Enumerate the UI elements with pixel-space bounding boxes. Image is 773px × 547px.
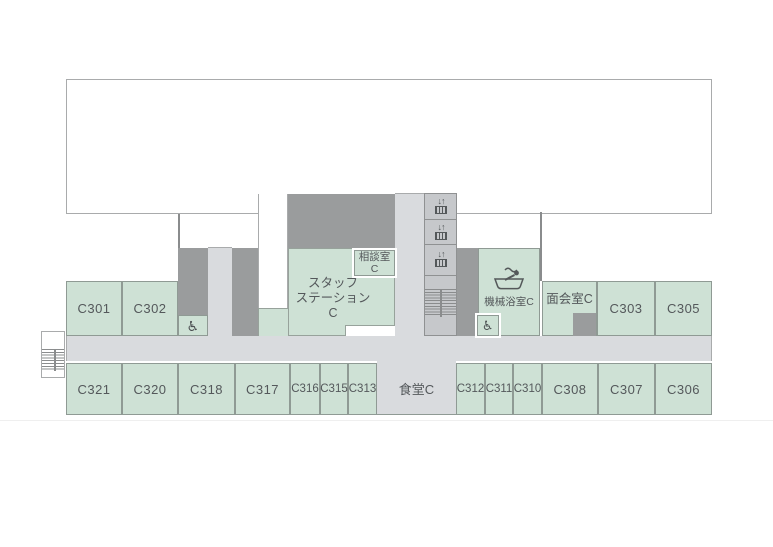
wheelchair-icon: ♿ bbox=[186, 319, 199, 333]
wheelchair-icon: ♿ bbox=[482, 319, 494, 332]
room-C305: C305 bbox=[655, 281, 712, 336]
exterior-stairs bbox=[41, 331, 65, 378]
room-C317: C317 bbox=[235, 363, 290, 415]
floor-plan: ↓↑ ↓↑ ↓↑ スタッフ ステーション C 相談室 C 機械 bbox=[0, 0, 773, 547]
consult-room-label: 相談室 bbox=[359, 251, 391, 263]
consult-room: 相談室 C bbox=[354, 250, 395, 276]
meeting-room-label: 面会室C bbox=[546, 288, 593, 307]
corridor-vertical-left bbox=[208, 247, 232, 336]
shaft bbox=[258, 194, 288, 308]
room-C303: C303 bbox=[597, 281, 655, 336]
room-C321: C321 bbox=[66, 363, 122, 415]
elevator-icon: ↓↑ bbox=[434, 198, 448, 214]
room-C315: C315 bbox=[320, 363, 348, 415]
room-C320: C320 bbox=[122, 363, 178, 415]
wall-right-connector bbox=[540, 212, 542, 281]
room-C301: C301 bbox=[66, 281, 122, 336]
corridor-vertical-center bbox=[395, 193, 424, 336]
room-C308: C308 bbox=[542, 363, 598, 415]
elevator-door-icon bbox=[435, 206, 447, 214]
room-C311: C311 bbox=[485, 363, 513, 415]
elevator-arrows: ↓↑ bbox=[438, 224, 445, 232]
room-C318: C318 bbox=[178, 363, 235, 415]
service-block-c bbox=[457, 248, 478, 336]
staff-station-label: スタッフ ステーション C bbox=[288, 276, 378, 320]
accessible-toilet-left: ♿ bbox=[178, 315, 208, 336]
service-block-a bbox=[178, 248, 208, 315]
dining-hall-area bbox=[377, 336, 456, 415]
elevator-door-icon bbox=[435, 259, 447, 267]
room-C307: C307 bbox=[598, 363, 655, 415]
elevator-bank: ↓↑ ↓↑ ↓↑ bbox=[424, 193, 457, 336]
room-C312: C312 bbox=[456, 363, 485, 415]
service-block-d bbox=[573, 313, 596, 336]
bath-icon bbox=[492, 266, 526, 292]
elevator-arrows: ↓↑ bbox=[438, 198, 445, 206]
staff-station-extension bbox=[258, 308, 288, 336]
elevator-door-icon bbox=[435, 232, 447, 240]
elevator-arrows: ↓↑ bbox=[438, 251, 445, 259]
room-C310: C310 bbox=[513, 363, 542, 415]
elevator-icon: ↓↑ bbox=[434, 224, 448, 240]
service-block-b bbox=[232, 248, 258, 336]
dining-hall-label: 食堂C bbox=[377, 379, 456, 398]
service-block-top bbox=[288, 194, 395, 248]
stairs-icon bbox=[42, 349, 64, 371]
room-C302: C302 bbox=[122, 281, 178, 336]
page-divider bbox=[0, 420, 773, 421]
staff-station-notch bbox=[345, 325, 395, 336]
elevator-icon: ↓↑ bbox=[434, 251, 448, 267]
room-C313: C313 bbox=[348, 363, 377, 415]
wall-left-connector bbox=[178, 214, 180, 248]
room-C306: C306 bbox=[655, 363, 712, 415]
machine-bath-label: 機械浴室C bbox=[484, 294, 534, 309]
accessible-toilet-right: ♿ bbox=[477, 315, 499, 336]
room-C316: C316 bbox=[290, 363, 320, 415]
